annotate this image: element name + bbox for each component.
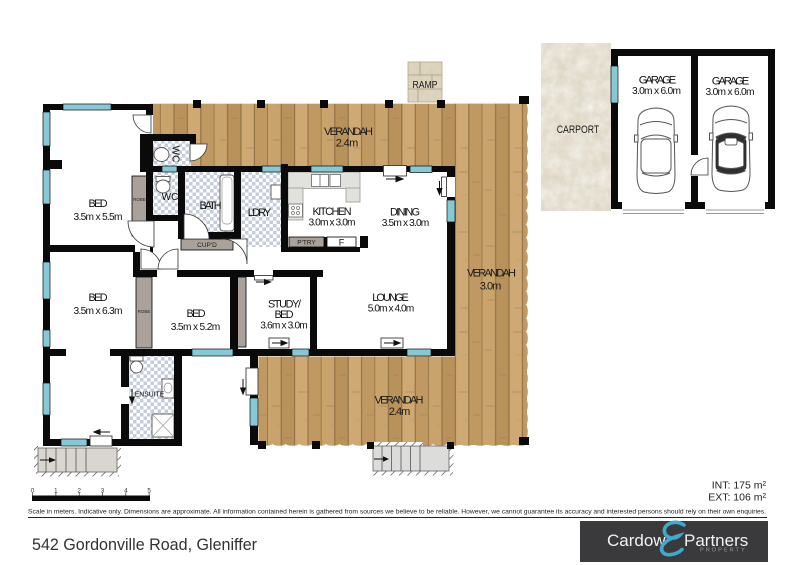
svg-text:WC: WC bbox=[162, 192, 179, 203]
svg-text:3.0m x 6.0m: 3.0m x 6.0m bbox=[706, 87, 755, 98]
svg-text:ROBE: ROBE bbox=[133, 197, 146, 202]
svg-text:3.5m x 3.0m: 3.5m x 3.0m bbox=[382, 218, 430, 229]
svg-text:VERANDAH: VERANDAH bbox=[467, 268, 516, 280]
svg-text:3.0m x 6.0m: 3.0m x 6.0m bbox=[632, 86, 681, 97]
svg-text:GARAGE: GARAGE bbox=[639, 75, 677, 87]
svg-text:Scale in meters. Indicative on: Scale in meters. Indicative only. Dimens… bbox=[28, 509, 766, 516]
svg-text:2.4m: 2.4m bbox=[336, 138, 359, 150]
svg-text:LOUNGE: LOUNGE bbox=[372, 292, 409, 304]
svg-text:F: F bbox=[339, 238, 345, 248]
svg-text:GARAGE: GARAGE bbox=[712, 76, 750, 88]
svg-text:P'TRY: P'TRY bbox=[297, 240, 316, 247]
svg-text:PROPERTY: PROPERTY bbox=[700, 548, 747, 554]
svg-text:5.0m x 4.0m: 5.0m x 4.0m bbox=[368, 304, 415, 315]
svg-text:RAMP: RAMP bbox=[413, 79, 438, 91]
svg-text:BED: BED bbox=[187, 308, 206, 320]
svg-text:KITCHEN: KITCHEN bbox=[313, 206, 352, 218]
svg-text:3.0m: 3.0m bbox=[480, 281, 502, 293]
svg-text:3.5m x 6.3m: 3.5m x 6.3m bbox=[74, 306, 123, 317]
svg-text:BATH: BATH bbox=[200, 200, 222, 212]
svg-text:3.5m x 5.2m: 3.5m x 5.2m bbox=[171, 322, 221, 333]
svg-text:Cardow: Cardow bbox=[607, 531, 666, 550]
svg-text:BED: BED bbox=[89, 198, 108, 210]
svg-text:3.6m x 3.0m: 3.6m x 3.0m bbox=[260, 321, 308, 332]
svg-text:L'DRY: L'DRY bbox=[248, 207, 272, 219]
svg-text:WC: WC bbox=[170, 146, 181, 163]
svg-text:2.4m: 2.4m bbox=[389, 406, 411, 418]
svg-text:VERANDAH: VERANDAH bbox=[375, 395, 424, 407]
svg-text:VERANDAH: VERANDAH bbox=[324, 126, 373, 138]
svg-text:3.5m x 5.5m: 3.5m x 5.5m bbox=[74, 212, 123, 223]
svg-text:BED: BED bbox=[89, 292, 108, 304]
svg-text:BED: BED bbox=[275, 309, 294, 321]
svg-text:EXT: 106 m²: EXT: 106 m² bbox=[708, 492, 766, 504]
svg-text:INT: 175 m²: INT: 175 m² bbox=[712, 480, 767, 492]
svg-text:3.0m x 3.0m: 3.0m x 3.0m bbox=[309, 218, 356, 229]
svg-text:DINING: DINING bbox=[390, 207, 420, 219]
svg-text:CUP'D: CUP'D bbox=[197, 242, 217, 249]
svg-text:ENSUITE: ENSUITE bbox=[135, 390, 165, 399]
svg-text:542 Gordonville Road, Gleniffe: 542 Gordonville Road, Gleniffer bbox=[32, 535, 257, 554]
svg-text:ROBE: ROBE bbox=[138, 309, 151, 314]
svg-text:CARPORT: CARPORT bbox=[557, 124, 600, 136]
